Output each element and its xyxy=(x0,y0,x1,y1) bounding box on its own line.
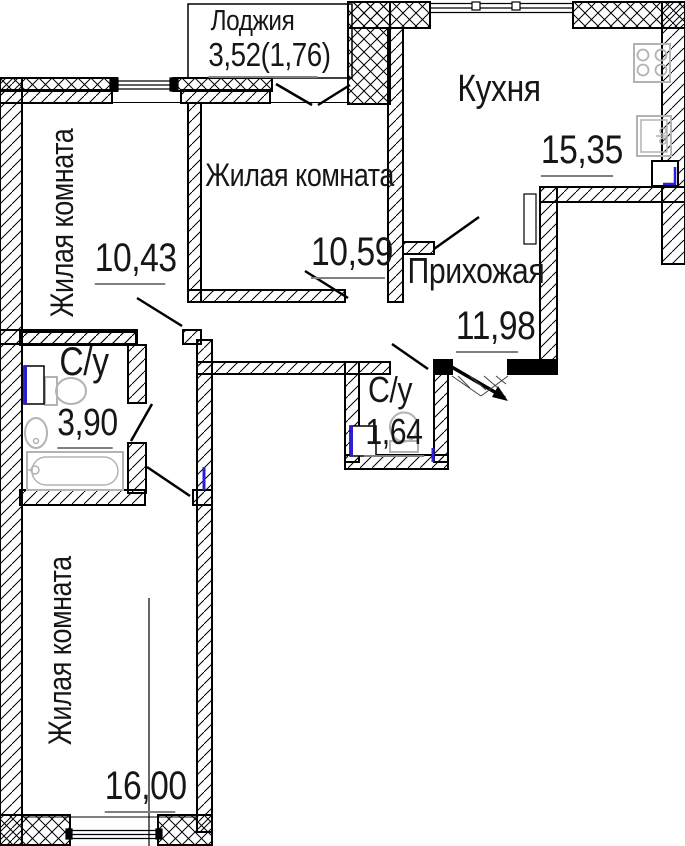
label-bath-small-name: С/у xyxy=(361,372,418,409)
label-living-bottom-name: Жилая комната xyxy=(44,557,78,745)
label-kitchen-area: 15,35 xyxy=(541,130,613,177)
label-living-left-name: Жилая комната xyxy=(46,133,80,318)
label-bath-large-name: С/у xyxy=(54,342,114,383)
label-loggia-name: Лоджия xyxy=(196,7,309,37)
label-living-bottom-area: 16,00 xyxy=(105,766,176,813)
floor-plan: Лоджия 3,52(1,76) Кухня 15,35 Жилая комн… xyxy=(0,0,685,846)
label-bath-small-area: 1,64 xyxy=(364,414,424,457)
label-hallway-area: 11,98 xyxy=(456,306,518,353)
label-bath-large-area: 3,90 xyxy=(57,404,112,449)
label-living-middle-area: 10,59 xyxy=(311,232,385,279)
label-living-middle-name: Жилая комната xyxy=(205,159,386,192)
label-living-left-area: 10,43 xyxy=(95,238,166,285)
duct-shaft xyxy=(524,194,536,244)
label-kitchen-name: Кухня xyxy=(436,70,562,109)
label-hallway-name: Прихожая xyxy=(408,253,529,290)
label-loggia-area: 3,52(1,76) xyxy=(208,38,317,78)
